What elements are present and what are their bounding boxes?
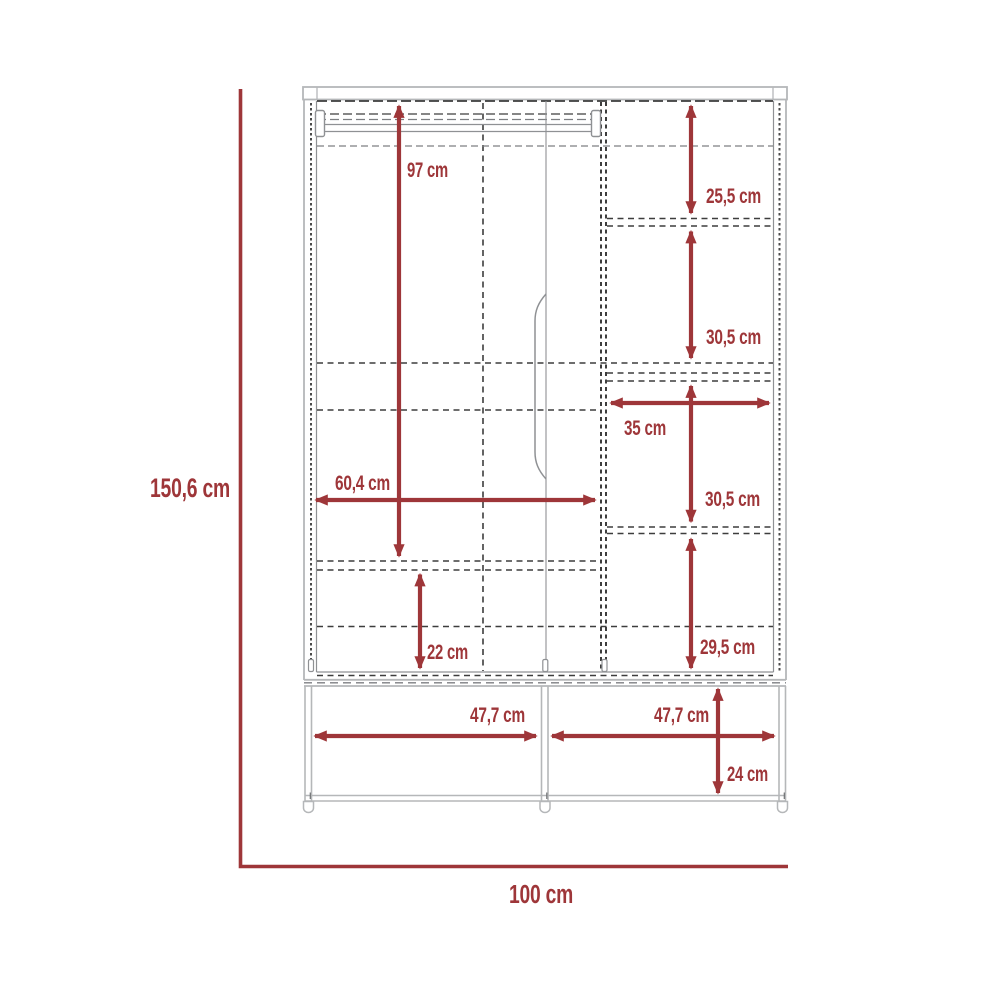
base-height-label: 24 cm (727, 762, 768, 786)
left-bottom-label: 22 cm (427, 640, 468, 664)
right-comp-3-label: 30,5 cm (705, 487, 760, 511)
right-comp-2-label: 30,5 cm (706, 325, 761, 349)
handle-outline (535, 294, 546, 479)
base-right-width-label: 47,7 cm (654, 703, 709, 727)
dimension-arrows (315, 106, 774, 793)
diagram-canvas: 150,6 cm 100 cm 97 cm 25,5 cm 30,5 cm 35… (0, 0, 1000, 1000)
wardrobe-dimension-diagram: 150,6 cm 100 cm 97 cm 25,5 cm 30,5 cm 35… (0, 0, 1000, 1000)
overall-width-label: 100 cm (509, 881, 573, 909)
foot-right (778, 802, 788, 813)
hanging-height-label: 97 cm (407, 158, 448, 182)
right-width-label: 35 cm (624, 416, 666, 440)
door-handle (535, 101, 546, 671)
foot-left (304, 802, 314, 813)
right-comp-4-label: 29,5 cm (700, 635, 755, 659)
rod-bracket-left (316, 111, 325, 137)
rod-bracket-right (592, 111, 601, 137)
connector-divider (602, 660, 607, 672)
base-left-width-label: 47,7 cm (470, 703, 525, 727)
connector-left (309, 660, 314, 672)
hanging-rod (316, 111, 601, 137)
top-panel (303, 87, 787, 100)
right-comp-1-label: 25,5 cm (706, 184, 761, 208)
cabinet-outline (303, 87, 787, 680)
left-width-label: 60,4 cm (335, 471, 390, 495)
connector-center (543, 660, 548, 672)
overall-height-label: 150,6 cm (150, 473, 230, 503)
foot-center (540, 802, 550, 813)
